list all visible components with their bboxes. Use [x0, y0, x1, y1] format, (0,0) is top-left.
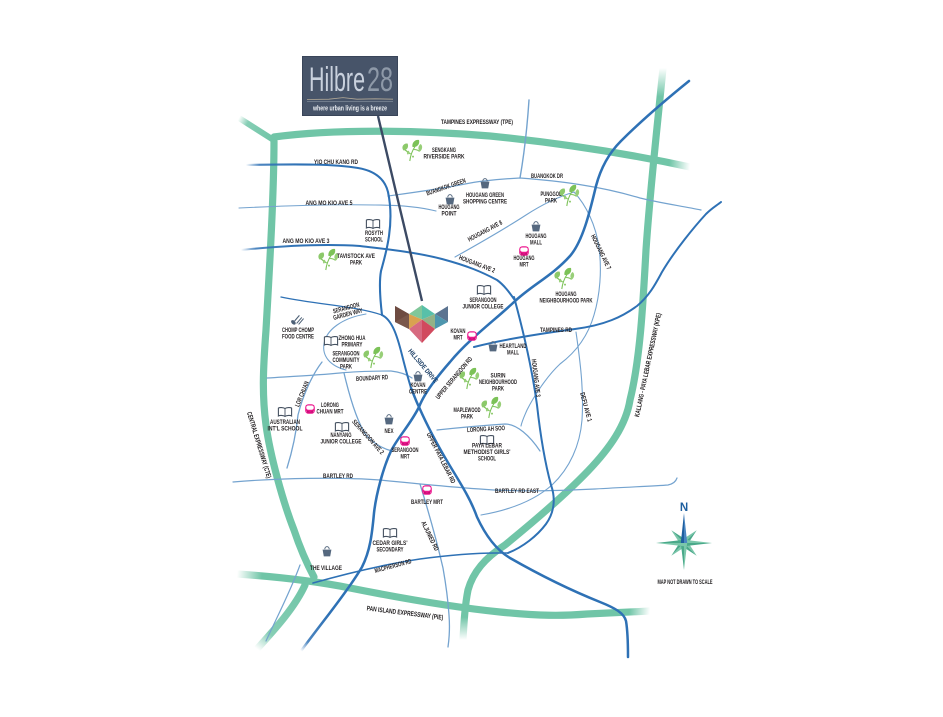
- svg-text:TAMPINES EXPRESSWAY (TPE): TAMPINES EXPRESSWAY (TPE): [441, 119, 513, 126]
- svg-text:Hilbre: Hilbre: [309, 61, 365, 99]
- svg-text:YIO CHU KANG RD: YIO CHU KANG RD: [314, 159, 358, 166]
- svg-text:ANG MO KIO AVE 3: ANG MO KIO AVE 3: [283, 238, 330, 245]
- svg-text:CHOMP CHOMPFOOD CENTRE: CHOMP CHOMPFOOD CENTRE: [282, 327, 314, 340]
- svg-text:TAMPINES RD: TAMPINES RD: [540, 327, 572, 334]
- svg-text:BARTLEY RD: BARTLEY RD: [323, 473, 353, 480]
- svg-text:28: 28: [367, 61, 393, 99]
- svg-text:BUANGKOK DR: BUANGKOK DR: [531, 173, 563, 180]
- svg-text:ANG MO KIO AVE 5: ANG MO KIO AVE 5: [306, 200, 353, 207]
- svg-text:KOVANCENTRE: KOVANCENTRE: [409, 382, 427, 395]
- svg-text:where urban living is a breeze: where urban living is a breeze: [312, 106, 387, 113]
- svg-text:N: N: [680, 502, 688, 514]
- svg-text:BARTLEY RD EAST: BARTLEY RD EAST: [495, 488, 539, 495]
- svg-text:NEX: NEX: [385, 428, 394, 435]
- svg-text:HOUGANGPOINT: HOUGANGPOINT: [439, 204, 460, 217]
- svg-text:CEDAR GIRLS'SECONDARY: CEDAR GIRLS'SECONDARY: [373, 540, 408, 553]
- svg-text:MAP NOT DRAWN TO SCALE: MAP NOT DRAWN TO SCALE: [658, 579, 713, 586]
- svg-text:ZHONG HUAPRIMARY: ZHONG HUAPRIMARY: [339, 335, 366, 348]
- svg-text:BARTLEY MRT: BARTLEY MRT: [411, 499, 443, 506]
- svg-text:HOUGANG GREENSHOPPING CENTRE: HOUGANG GREENSHOPPING CENTRE: [463, 192, 507, 205]
- svg-text:THE VILLAGE: THE VILLAGE: [310, 565, 342, 572]
- svg-text:AUSTRALIANINT'L SCHOOL: AUSTRALIANINT'L SCHOOL: [268, 419, 303, 432]
- svg-text:ROSYTHSCHOOL: ROSYTHSCHOOL: [365, 230, 383, 243]
